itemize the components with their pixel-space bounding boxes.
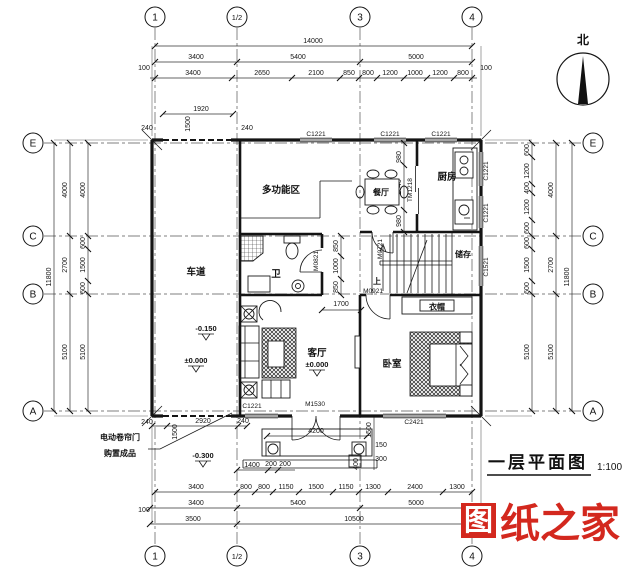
dim-text: 1500: [172, 424, 179, 440]
window-code: C1221: [483, 161, 490, 181]
dim-text: 850: [333, 240, 340, 252]
shower: [241, 236, 263, 261]
dim-text: 800: [362, 70, 374, 77]
dim-text: 600: [524, 282, 531, 294]
dim-text: 800: [240, 484, 252, 491]
dim-text: 200: [265, 461, 277, 468]
dim-text: 800: [258, 484, 270, 491]
window-code: C1221: [242, 403, 262, 410]
bath-vanity: [248, 276, 270, 292]
dim-text: 11800: [46, 267, 53, 286]
dim-text: 1150: [338, 484, 353, 491]
dim-text: 1000: [407, 70, 423, 77]
dim-text: 850: [333, 281, 340, 293]
dim-text: 1300: [365, 484, 381, 491]
bathroom-fixtures: [241, 236, 304, 292]
door-code: M0721: [377, 239, 384, 259]
window-code: C2421: [404, 419, 424, 426]
bed: [430, 344, 472, 386]
note-line2: 购置成品: [104, 448, 136, 458]
stair-up-label: 上: [373, 276, 381, 286]
dim-text: 5400: [290, 500, 306, 507]
dim-text: 600: [524, 222, 531, 234]
title-scale: 1:100: [597, 462, 622, 473]
room-label-living: 客厅: [306, 347, 327, 359]
dim-text: 980: [396, 151, 403, 163]
door-code: TM1218: [407, 178, 414, 202]
dim-text: 5100: [548, 344, 555, 360]
dim-text: 5400: [290, 54, 306, 61]
dim-text: 200: [279, 461, 291, 468]
dim-text: 2650: [254, 70, 270, 77]
coffee-table: [268, 341, 284, 367]
floor-plan-sheet: 1 1/2 3 4 1 1/2 3 4 E C B A E C B A: [0, 0, 640, 569]
north-label: 北: [577, 32, 589, 47]
dim-text: 2700: [548, 257, 555, 273]
toilet: [286, 243, 298, 259]
loveseat: [262, 380, 290, 398]
dim-text: 100: [138, 507, 150, 514]
dim-text: 3400: [188, 484, 204, 491]
toilet-tank: [284, 236, 300, 243]
room-label-multifunction: 多功能区: [262, 184, 301, 196]
room-label-storage: 储存: [454, 249, 471, 259]
dim-text: 2920: [195, 418, 211, 425]
door-code: M0821: [313, 251, 320, 271]
tv-niche: [355, 336, 360, 368]
floor-plan-drawing: 1 1/2 3 4 1 1/2 3 4 E C B A E C B A: [0, 0, 640, 569]
watermark-text: 纸之家: [500, 502, 620, 546]
dim-text: 600: [524, 144, 531, 156]
dim-text: 100: [138, 65, 150, 72]
sofa: [239, 326, 259, 378]
watermark: 图 纸之家: [461, 502, 620, 546]
nightstand: [460, 332, 472, 343]
grid-col-label: 4: [469, 13, 475, 24]
dim-text: 3500: [185, 516, 201, 523]
drawing-title: 一层平面图 1:100: [487, 453, 622, 475]
grid-row-label: E: [30, 139, 37, 150]
grid-row-label: C: [29, 232, 36, 243]
room-label-kitchen: 厨房: [437, 171, 456, 183]
dim-text: 5000: [408, 500, 424, 507]
grid-row-label: E: [590, 139, 597, 150]
grid-bubbles: 1 1/2 3 4 1 1/2 3 4 E C B A E C B A: [23, 7, 603, 566]
dim-text: 1500: [308, 484, 324, 491]
nightstand: [460, 385, 472, 396]
level-text: ±0.000: [185, 356, 208, 365]
level-text: -0.300: [192, 451, 213, 460]
north-arrow: 北: [557, 32, 609, 105]
door-code: M0921: [363, 288, 383, 295]
dim-text: 3400: [185, 70, 201, 77]
dim-text: 850: [343, 70, 355, 77]
dim-text: 3400: [188, 54, 204, 61]
dim-text: 10500: [344, 516, 364, 523]
window-code: C1221: [306, 131, 326, 138]
note-leader: [148, 413, 232, 449]
dim-text: 100: [480, 65, 492, 72]
room-label-dining: 餐厅: [372, 187, 389, 197]
dim-text: 3400: [188, 500, 204, 507]
dim-text: 2400: [407, 484, 423, 491]
level-text: ±0.000: [306, 360, 329, 369]
kitchen-sliding-door: [416, 166, 419, 214]
dim-text: 600: [80, 282, 87, 294]
armchair: [259, 301, 281, 320]
level-text: -0.150: [195, 324, 216, 333]
window-code: C1221: [483, 203, 490, 223]
room-label-bedroom: 卧室: [382, 358, 402, 370]
dim-text: 1200: [524, 163, 531, 179]
dim-text: 4000: [548, 182, 555, 198]
dim-text: 150: [375, 442, 387, 449]
dim-text: 1000: [333, 258, 340, 274]
level-marks: -0.150 ±0.000 ±0.000 -0.300: [185, 324, 329, 467]
dim-text: 4000: [80, 182, 87, 198]
rolling-shutter-doors: [163, 140, 231, 416]
dim-text: 5100: [80, 344, 87, 360]
window-code: C1221: [431, 131, 451, 138]
grid-col-label: 1/2: [232, 13, 242, 22]
bedroom-door-swing: [366, 295, 390, 319]
watermark-stamp-char: 图: [464, 505, 493, 537]
dim-text: 1200: [382, 70, 398, 77]
dim-text: 5100: [62, 344, 69, 360]
dim-text: 240: [237, 418, 249, 425]
door-code: M1530: [305, 401, 325, 408]
kitchen-fixtures: [453, 148, 477, 230]
dim-text: 600: [80, 237, 87, 249]
dim-text: 2100: [308, 70, 324, 77]
dim-text: 600: [524, 237, 531, 249]
dim-text: 1500: [185, 116, 192, 132]
room-label-bath: 卫: [271, 269, 281, 280]
dim-text: 1920: [193, 106, 209, 113]
dim-text: 5000: [408, 54, 424, 61]
grid-col-label: 4: [469, 552, 475, 563]
dim-text: 1200: [432, 70, 448, 77]
dim-text: 1500: [80, 257, 87, 273]
dim-text: 1300: [449, 484, 465, 491]
kitchen-sink: [455, 200, 473, 224]
room-label-wardrobe: 衣帽: [429, 302, 445, 312]
dim-text: 4000: [62, 182, 69, 198]
living-room-furniture: [239, 301, 360, 398]
grid-col-label: 1: [152, 552, 158, 563]
window-code: C1221: [380, 131, 400, 138]
dim-text: 1700: [333, 301, 349, 308]
dim-text: 11800: [564, 267, 571, 286]
grid-col-label: 1/2: [232, 552, 242, 561]
note-line1: 电动卷帘门: [100, 432, 140, 442]
room-label-garage: 车道: [186, 266, 206, 278]
grid-row-label: B: [30, 290, 37, 301]
grid-row-label: A: [590, 407, 597, 418]
grid-col-label: 3: [357, 552, 363, 563]
dim-text: 980: [396, 215, 403, 227]
window-code: C1521: [483, 257, 490, 277]
title-text: 一层平面图: [488, 453, 588, 472]
grid-row-label: B: [590, 290, 597, 301]
dim-text: 1150: [278, 484, 293, 491]
basin: [292, 280, 304, 292]
bedroom-furniture: [410, 332, 472, 396]
north-needle: [578, 56, 588, 104]
dim-text: 14000: [303, 38, 323, 45]
dim-text: 5100: [524, 344, 531, 360]
dim-text: 2700: [62, 257, 69, 273]
dim-text: 400: [524, 182, 531, 194]
grid-row-label: A: [30, 407, 37, 418]
grid-col-label: 1: [152, 13, 158, 24]
dim-text: 240: [241, 125, 253, 132]
dim-text: 800: [457, 70, 469, 77]
door-symbols: [292, 166, 419, 440]
grid-col-label: 3: [357, 13, 363, 24]
dim-text: 1200: [524, 199, 531, 215]
stairs: [372, 232, 452, 295]
dim-text: 1500: [524, 257, 531, 273]
grid-row-label: C: [589, 232, 596, 243]
